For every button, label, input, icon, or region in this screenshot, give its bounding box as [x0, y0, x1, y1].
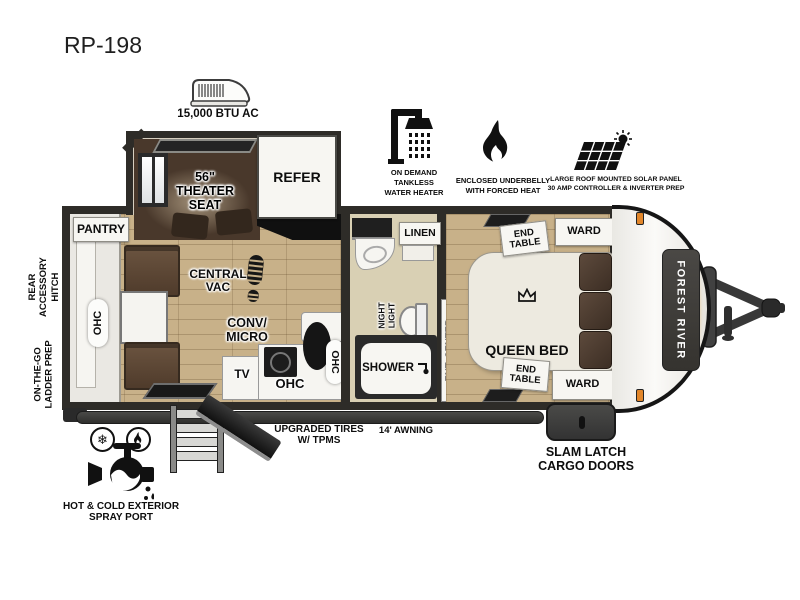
marker-light [636, 212, 644, 225]
rear-ohc-label: OHC [72, 298, 124, 348]
sink-basin-icon [361, 243, 388, 265]
forced-heat-flame-icon [480, 120, 516, 170]
spray-port-faucet-icon [86, 443, 154, 503]
theater-footrest [171, 212, 209, 240]
spray-port-label: HOT & COLD EXTERIOR SPRAY PORT [62, 501, 180, 523]
window-pane [142, 157, 152, 203]
tv-label: TV [226, 368, 258, 381]
central-vac-label: CENTRAL VAC [186, 268, 250, 295]
queen-bed-label: QUEEN BED [468, 343, 586, 359]
cargo-doors-label: SLAM LATCH CARGO DOORS [536, 445, 636, 473]
wardrobe-top: WARD [555, 218, 613, 246]
end-table-bottom: END TABLE [501, 357, 551, 392]
kitchen-ohc-label: OHC [262, 377, 318, 392]
crown-icon [516, 288, 538, 304]
conv-micro-label: CONV/ MICRO [212, 316, 282, 344]
marker-light [636, 389, 644, 402]
ladder-rung [176, 437, 218, 447]
ac-unit-icon [186, 76, 254, 108]
skylight [152, 139, 257, 153]
tires-label: UPGRADED TIRES W/ TPMS [268, 424, 370, 446]
ladder-rung [176, 451, 218, 461]
brand-label: FOREST RIVER [675, 260, 687, 359]
awning-roller [76, 411, 544, 424]
dinette-bench [124, 245, 180, 297]
awning-label: 14' AWNING [366, 426, 446, 437]
water-heater-label: ON DEMAND TANKLESS WATER HEATER [368, 168, 460, 197]
theater-seat-label: 56" THEATER SEAT [160, 170, 250, 212]
dinette-table [120, 291, 168, 344]
bed-pillow [579, 292, 612, 330]
ac-label: 15,000 BTU AC [162, 108, 274, 121]
end-table-top: END TABLE [499, 220, 549, 256]
solar-label: LARGE ROOF MOUNTED SOLAR PANEL 30 AMP CO… [538, 176, 694, 194]
bed-pillow [579, 331, 612, 369]
cargo-door [546, 403, 616, 441]
cooktop [264, 347, 297, 377]
solar-panel-icon [568, 130, 632, 172]
page-title: RP-198 [64, 32, 142, 59]
theater-footrest [215, 208, 253, 236]
wardrobe-bottom: WARD [552, 370, 613, 400]
bed-pillow [579, 253, 612, 291]
medicine-cabinet [352, 218, 392, 240]
floorplan-page: RP-198 15,000 BTU AC ON DEMAND TANKLESS [0, 0, 800, 600]
linen-cabinet [402, 245, 434, 261]
brand-badge: FOREST RIVER [662, 249, 700, 371]
water-heater-icon [388, 103, 440, 165]
pantry-label: PANTRY [73, 217, 129, 242]
cargo-door-handle [579, 416, 585, 429]
footprint-icon [244, 254, 266, 304]
linen-cabinet-label: LINEN [399, 222, 441, 245]
bathroom-wall [341, 214, 350, 402]
burner-icon [270, 352, 291, 373]
refrigerator: REFER [257, 135, 337, 219]
